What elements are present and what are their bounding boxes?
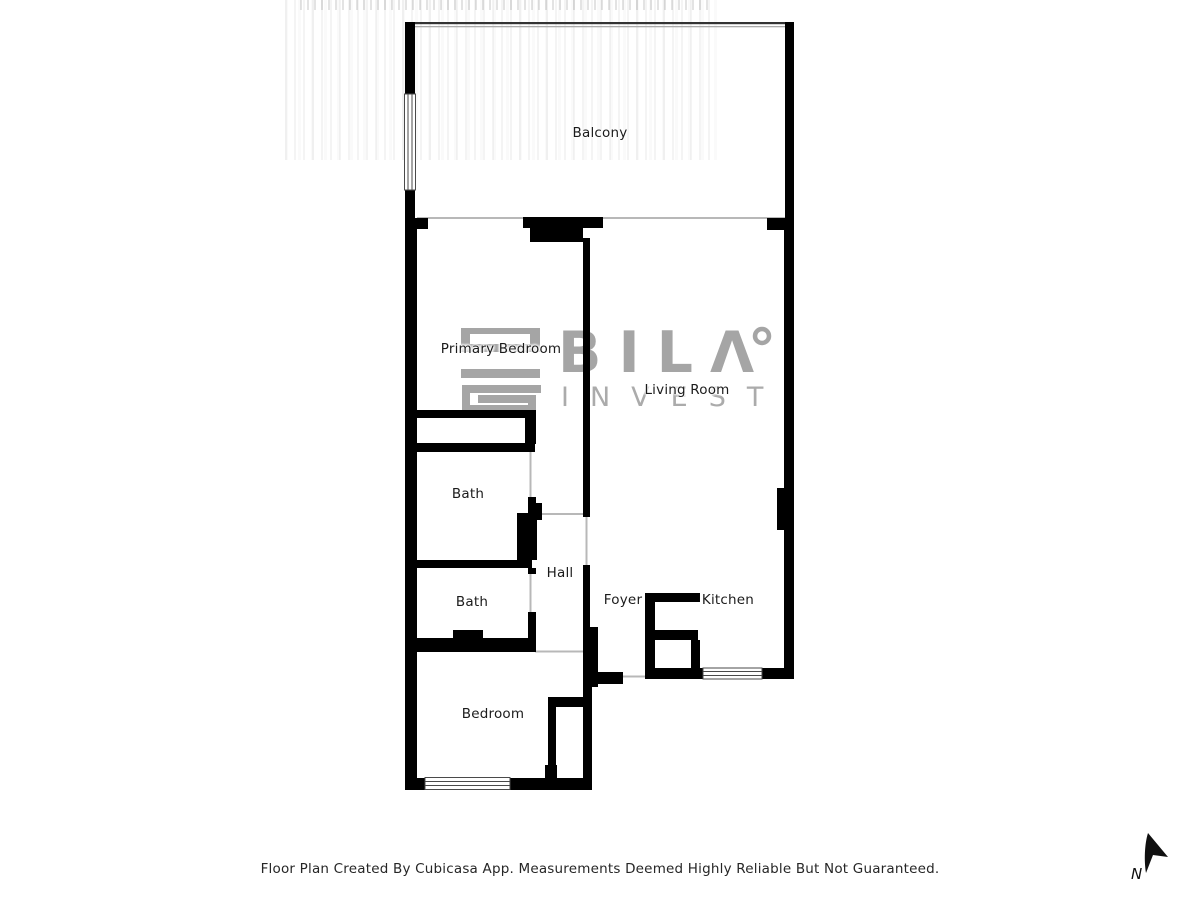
room-label-bath-1: Bath — [452, 486, 484, 502]
room-label-kitchen: Kitchen — [702, 592, 754, 608]
room-label-bedroom: Bedroom — [462, 706, 524, 722]
room-label-foyer: Foyer — [604, 592, 642, 608]
room-label-balcony: Balcony — [573, 125, 628, 141]
kitchen-window — [703, 668, 762, 679]
room-label-living-room: Living Room — [644, 382, 729, 398]
floorplan-page: BILΛ INVEST — [0, 0, 1200, 900]
balcony-railing-line — [406, 22, 794, 27]
room-label-hall: Hall — [547, 565, 574, 581]
room-label-bath-2: Bath — [456, 594, 488, 610]
room-label-primary-bedroom: Primary Bedroom — [441, 341, 562, 357]
bedroom-window — [425, 778, 510, 790]
bila-invest-watermark: BILΛ INVEST — [461, 320, 784, 413]
balcony-window — [405, 94, 416, 190]
footer-disclaimer: Floor Plan Created By Cubicasa App. Meas… — [0, 861, 1200, 877]
